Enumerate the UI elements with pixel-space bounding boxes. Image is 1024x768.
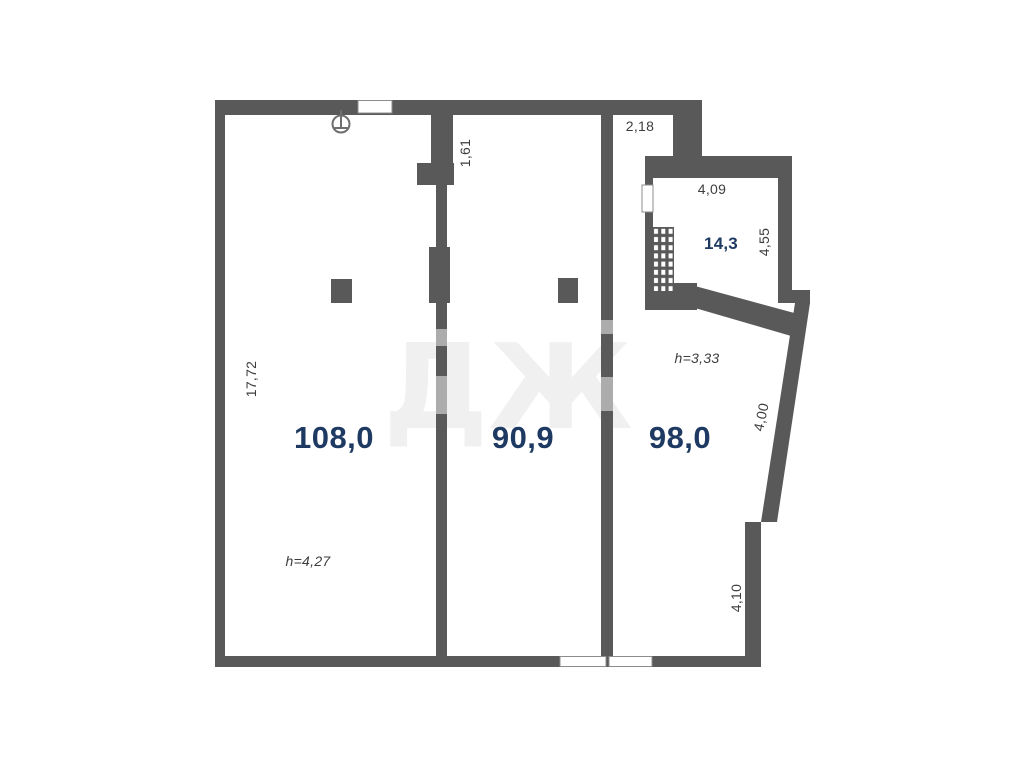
- column-room-108: [331, 279, 352, 303]
- window-bottom-left: [560, 657, 606, 667]
- wall-left: [215, 100, 225, 667]
- room-area-label-14-3: 14,3: [704, 234, 738, 254]
- wall-passage-right: [673, 115, 702, 158]
- wall-top: [215, 100, 702, 115]
- dimension-left-wall: 17,72: [243, 361, 259, 398]
- window-top-wall: [358, 101, 392, 114]
- column-room-90-9: [558, 278, 578, 303]
- dimension-room-14-3-depth: 4,55: [756, 228, 772, 256]
- wall-right-lower: [745, 522, 761, 667]
- wall-room-14-3-right: [778, 178, 792, 290]
- room-area-label-98: 98,0: [649, 420, 711, 456]
- dimension-passage-width: 2,18: [626, 118, 654, 134]
- window-room-14-3: [642, 185, 653, 212]
- floor-plan-canvas: ДЖ: [0, 0, 1024, 768]
- dimension-lower-right-wall: 4,10: [728, 584, 744, 612]
- ceiling-height-label-room-108: h=4,27: [285, 553, 330, 569]
- wall-divider-left-pier: [429, 247, 450, 303]
- dimension-niche-depth: 1,61: [457, 139, 473, 167]
- wall-bottom-right: [652, 656, 761, 667]
- wall-divider-left-foot: [417, 163, 454, 185]
- window-bottom-right: [609, 657, 652, 667]
- ceiling-height-label-room-98: h=3,33: [674, 350, 719, 366]
- room-area-label-108: 108,0: [294, 420, 374, 456]
- wall-divider-left-stub: [431, 115, 453, 163]
- wall-bottom-left: [215, 656, 560, 667]
- room-area-label-90-9: 90,9: [492, 420, 554, 456]
- wall-room-14-3-top: [645, 156, 792, 178]
- hatched-shaft-grid: [653, 228, 673, 291]
- floor-plan-drawing: ДЖ: [0, 0, 1024, 768]
- dimension-room-14-3-width: 4,09: [698, 181, 726, 197]
- wall-right-step: [778, 290, 810, 303]
